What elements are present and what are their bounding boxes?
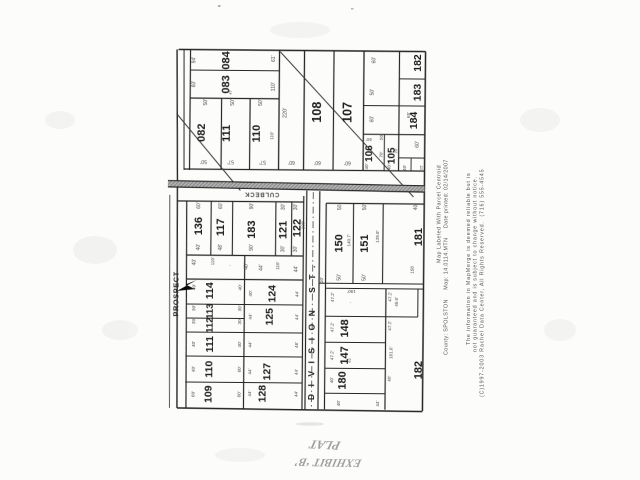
svg-text:220': 220' (282, 108, 288, 118)
svg-text:136: 136 (193, 217, 205, 235)
svg-text:110': 110' (210, 257, 215, 265)
svg-text:44': 44' (259, 264, 265, 271)
svg-text:County: SPOLSTON Map: 14.0: County: SPOLSTON Map: 14.0114.MTN Date p… (444, 159, 450, 355)
svg-text:47.2': 47.2' (387, 321, 392, 331)
svg-text:60': 60' (371, 57, 377, 64)
svg-text:20': 20' (393, 148, 398, 153)
svg-text:181: 181 (413, 228, 425, 246)
svg-text:44': 44' (247, 390, 252, 396)
svg-text:40': 40' (192, 259, 198, 266)
svg-text:139.8': 139.8' (375, 230, 380, 242)
svg-text:40': 40' (244, 263, 250, 270)
svg-text:48': 48' (218, 244, 224, 251)
svg-text:Map Labeled With Parcel Centro: Map Labeled With Parcel Centroid (437, 165, 443, 263)
svg-text:not guaranteed and is subject: not guaranteed and is subject to change … (473, 176, 479, 352)
svg-text:44': 44' (294, 266, 300, 273)
svg-text:44': 44' (294, 314, 299, 320)
svg-text:30': 30' (237, 305, 242, 311)
svg-text:30': 30' (237, 318, 242, 324)
svg-text:108: 108 (310, 102, 324, 123)
svg-text:44': 44' (375, 401, 380, 407)
svg-text:50': 50' (258, 99, 264, 106)
svg-text:60': 60' (191, 81, 197, 88)
svg-text:100': 100' (301, 221, 306, 230)
svg-text:50': 50' (203, 99, 209, 106)
svg-text:50': 50' (362, 204, 368, 211)
svg-text:40': 40' (387, 376, 392, 382)
svg-text:30': 30' (293, 204, 299, 211)
svg-text:65': 65' (406, 112, 411, 118)
svg-text:90': 90' (249, 244, 255, 251)
svg-text:60': 60' (196, 202, 202, 209)
svg-text:50': 50' (379, 134, 384, 140)
svg-text:110': 110' (275, 262, 280, 270)
svg-text:60': 60' (237, 391, 242, 397)
svg-text:25': 25' (419, 165, 424, 170)
svg-text:60': 60' (288, 159, 295, 165)
svg-text:151: 151 (359, 234, 371, 252)
svg-text:124: 124 (266, 285, 278, 303)
svg-text:158: 158 (410, 266, 415, 274)
svg-text:60': 60' (369, 116, 375, 123)
svg-text:182: 182 (413, 361, 425, 379)
svg-text:60': 60' (237, 366, 242, 372)
svg-text:128: 128 (256, 385, 268, 403)
svg-text:46.6': 46.6' (394, 297, 399, 307)
svg-text:182: 182 (412, 54, 424, 72)
svg-text:PLAT: PLAT (307, 437, 342, 452)
svg-text:30': 30' (293, 246, 299, 253)
svg-text:57': 57' (259, 159, 266, 165)
svg-text:30': 30' (191, 305, 196, 311)
svg-text:47.2': 47.2' (330, 322, 335, 332)
svg-text:44': 44' (294, 369, 299, 375)
svg-text:40': 40' (191, 284, 196, 290)
svg-text:082: 082 (196, 123, 208, 141)
svg-text:46': 46' (294, 342, 299, 348)
svg-text:DIVISION ST.: DIVISION ST. (306, 258, 317, 400)
svg-text:40': 40' (191, 341, 196, 347)
svg-text:40': 40' (387, 164, 392, 170)
svg-text:110: 110 (251, 125, 263, 143)
svg-text:109: 109 (202, 385, 214, 403)
svg-text:40': 40' (237, 341, 242, 347)
svg-text:40': 40' (336, 400, 341, 406)
svg-text:190': 190' (347, 289, 356, 294)
svg-text:90': 90' (249, 203, 255, 210)
svg-text:47.2': 47.2' (329, 350, 334, 360)
svg-text:40': 40' (248, 290, 253, 296)
svg-text:40': 40' (364, 163, 369, 169)
svg-text:112: 112 (205, 318, 216, 333)
svg-text:44': 44' (247, 341, 252, 347)
svg-text:47.2': 47.2' (330, 292, 335, 302)
svg-text:183: 183 (412, 84, 424, 102)
svg-text:60': 60' (191, 391, 196, 397)
svg-text:125: 125 (264, 308, 276, 326)
svg-text:111: 111 (221, 125, 233, 142)
svg-text:121: 121 (277, 221, 289, 239)
svg-text:114: 114 (204, 282, 216, 299)
svg-text:60': 60' (344, 159, 351, 165)
svg-text:180: 180 (337, 371, 349, 389)
svg-text:40': 40' (196, 244, 202, 251)
svg-text:113: 113 (205, 304, 216, 319)
svg-text:110': 110' (271, 82, 277, 91)
svg-text:183: 183 (246, 220, 258, 238)
svg-text:40': 40' (237, 284, 242, 290)
svg-text:94': 94' (191, 57, 197, 64)
svg-text:30': 30' (280, 246, 286, 253)
svg-text:60': 60' (218, 202, 224, 209)
svg-text:50': 50' (362, 274, 368, 281)
svg-text:47.2': 47.2' (387, 292, 392, 302)
svg-text:40': 40' (413, 204, 419, 211)
svg-text:140.7': 140.7' (346, 234, 351, 246)
svg-text:61': 61' (271, 55, 277, 62)
svg-text:30': 30' (191, 318, 196, 324)
svg-text:(C)1997-2003 Rachel Data Cente: (C)1997-2003 Rachel Data Center, All Rig… (480, 169, 486, 397)
svg-text:111: 111 (204, 336, 216, 353)
svg-text:10': 10' (319, 277, 324, 283)
svg-text:44': 44' (247, 368, 252, 374)
svg-text:44': 44' (248, 313, 253, 319)
svg-text:30': 30' (281, 204, 287, 211)
svg-text:44': 44' (294, 391, 299, 397)
svg-text:148: 148 (339, 319, 351, 337)
svg-text:The information in MapMerge is: The information in MapMerge is deemed re… (466, 173, 472, 345)
svg-text:60': 60' (366, 137, 372, 142)
svg-text:50': 50' (337, 274, 343, 281)
svg-text:084: 084 (220, 50, 232, 69)
svg-text:127: 127 (261, 363, 273, 381)
svg-text:161.6': 161.6' (388, 347, 393, 359)
svg-text:150: 150 (333, 234, 345, 252)
svg-text:PROSPECT: PROSPECT (171, 271, 180, 316)
svg-text:44': 44' (294, 291, 299, 297)
svg-text:50: 50 (337, 204, 343, 210)
svg-text:40': 40' (402, 165, 407, 171)
svg-text:EXHIBIT ‘B’: EXHIBIT ‘B’ (294, 455, 364, 469)
svg-text:50': 50' (370, 89, 376, 96)
svg-text:60': 60' (314, 159, 321, 165)
svg-text:60': 60' (415, 141, 421, 148)
svg-text:40': 40' (191, 366, 196, 372)
svg-text:40': 40' (329, 377, 334, 383)
svg-text:117: 117 (215, 218, 227, 236)
svg-text:110': 110' (269, 132, 274, 140)
svg-text:50': 50' (230, 99, 236, 106)
svg-text:50': 50' (200, 158, 207, 164)
svg-text:70': 70' (379, 152, 384, 158)
svg-text:107: 107 (340, 102, 354, 123)
svg-text:110: 110 (203, 361, 215, 378)
svg-text:CULBECK: CULBECK (244, 190, 279, 196)
svg-text:57': 57' (227, 158, 234, 164)
svg-text:106: 106 (364, 145, 375, 162)
